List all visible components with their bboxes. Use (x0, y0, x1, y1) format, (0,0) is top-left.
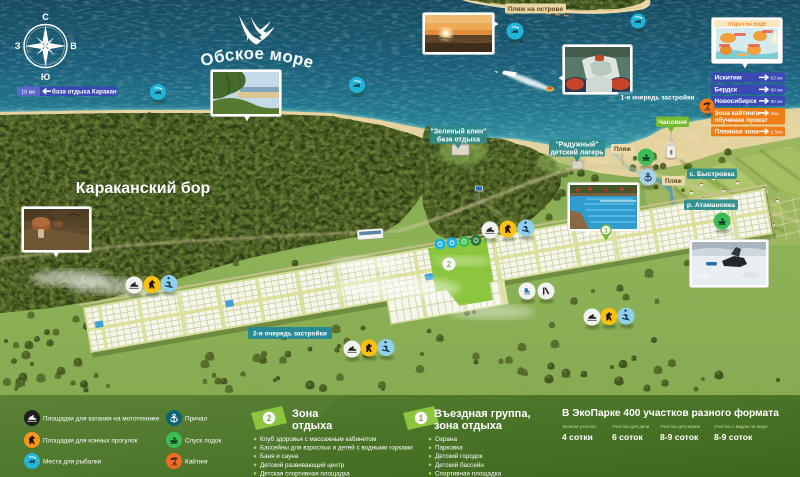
svg-text:8-9 соток: 8-9 соток (660, 432, 699, 442)
svg-text:В: В (70, 41, 77, 51)
svg-text:Бердск: Бердск (715, 87, 738, 94)
svg-text:2,5км: 2,5км (771, 130, 783, 136)
svg-text:Зона: Зона (292, 408, 319, 420)
svg-text:4 сотки: 4 сотки (562, 432, 593, 442)
svg-text:Площадки для катания на мототе: Площадки для катания на мототехнике (43, 415, 160, 422)
svg-text:Детский развивающий центр: Детский развивающий центр (260, 461, 345, 469)
svg-text:база отдыха Каракан: база отдыха Каракан (52, 89, 117, 96)
svg-text:ОТДЫХ НА ВОДЕ: ОТДЫХ НА ВОДЕ (728, 22, 767, 27)
svg-text:детский лагерь: детский лагерь (550, 149, 604, 157)
svg-text:обучение прокат: обучение прокат (715, 116, 768, 124)
svg-text:В ЭкоПарке 400 участков разног: В ЭкоПарке 400 участков разного формата (562, 407, 779, 419)
svg-text:Детская спортивная площадка: Детская спортивная площадка (260, 470, 350, 477)
svg-text:Участки для жизни: Участки для жизни (660, 424, 701, 429)
svg-text:С: С (42, 12, 49, 22)
svg-text:Участки для дачи: Участки для дачи (612, 424, 650, 429)
svg-text:Караканский бор: Караканский бор (76, 180, 211, 197)
svg-text:10 км: 10 км (21, 89, 35, 95)
svg-text:Новосибирск: Новосибирск (715, 97, 758, 105)
svg-text:69 км: 69 км (771, 88, 783, 94)
svg-text:Площадки для конных прогулок: Площадки для конных прогулок (43, 437, 138, 444)
svg-text:Зона кайтинга: Зона кайтинга (715, 109, 760, 117)
svg-text:2: 2 (267, 414, 272, 423)
svg-text:2-я очередь застройки: 2-я очередь застройки (253, 329, 327, 337)
svg-text:Баня и сауна: Баня и сауна (260, 453, 299, 460)
svg-text:Пляжная зона: Пляжная зона (715, 129, 760, 136)
svg-text:Клуб здоровья с массажным каби: Клуб здоровья с массажным кабинетом (260, 435, 376, 443)
svg-text:р. Атамановка: р. Атамановка (687, 202, 735, 209)
svg-text:80 км: 80 км (771, 99, 783, 105)
svg-text:1: 1 (419, 414, 424, 423)
svg-text:Спуск лодок: Спуск лодок (185, 437, 221, 444)
svg-text:с. Быстровка: с. Быстровка (689, 171, 734, 178)
svg-text:63 км: 63 км (771, 76, 783, 82)
svg-text:Пляж: Пляж (665, 178, 682, 185)
svg-text:4км: 4км (771, 111, 779, 117)
svg-text:Пляж на острове: Пляж на острове (508, 6, 564, 13)
svg-text:Пляж: Пляж (614, 146, 631, 153)
svg-text:Искитим: Искитим (715, 75, 742, 82)
svg-text:Причал: Причал (185, 415, 208, 422)
svg-text:Парковка: Парковка (435, 445, 463, 452)
svg-text:З: З (15, 41, 21, 51)
svg-text:база отдыха: база отдыха (437, 136, 480, 144)
svg-text:Участки с видом на море: Участки с видом на море (714, 424, 768, 429)
svg-text:8-9 соток: 8-9 соток (714, 432, 753, 442)
svg-text:Въездная группа,: Въездная группа, (434, 408, 531, 420)
svg-text:6 соток: 6 соток (612, 432, 643, 442)
svg-text:Места для рыбалки: Места для рыбалки (43, 457, 102, 465)
svg-text:Охрана: Охрана (435, 436, 457, 443)
svg-text:Ю: Ю (41, 72, 50, 82)
svg-text:Спортивная площадка: Спортивная площадка (435, 470, 502, 477)
svg-text:Бассейны для взрослых и детей: Бассейны для взрослых и детей с водными … (260, 444, 413, 452)
svg-text:Детский бассейн: Детский бассейн (435, 461, 484, 469)
svg-text:1: 1 (604, 228, 608, 235)
svg-text:Эконом участки: Эконом участки (562, 424, 596, 429)
svg-text:зона отдыха: зона отдыха (434, 420, 503, 432)
svg-text:Часовня: Часовня (658, 119, 687, 126)
svg-text:Детский городок: Детский городок (435, 452, 483, 460)
svg-text:"Зеленый клин": "Зеленый клин" (430, 128, 486, 136)
svg-text:1-я очередь застройки: 1-я очередь застройки (621, 93, 695, 101)
svg-text:"Радужный": "Радужный" (555, 141, 598, 149)
svg-text:отдыха: отдыха (292, 420, 333, 432)
svg-text:Кайтинг: Кайтинг (185, 457, 209, 465)
